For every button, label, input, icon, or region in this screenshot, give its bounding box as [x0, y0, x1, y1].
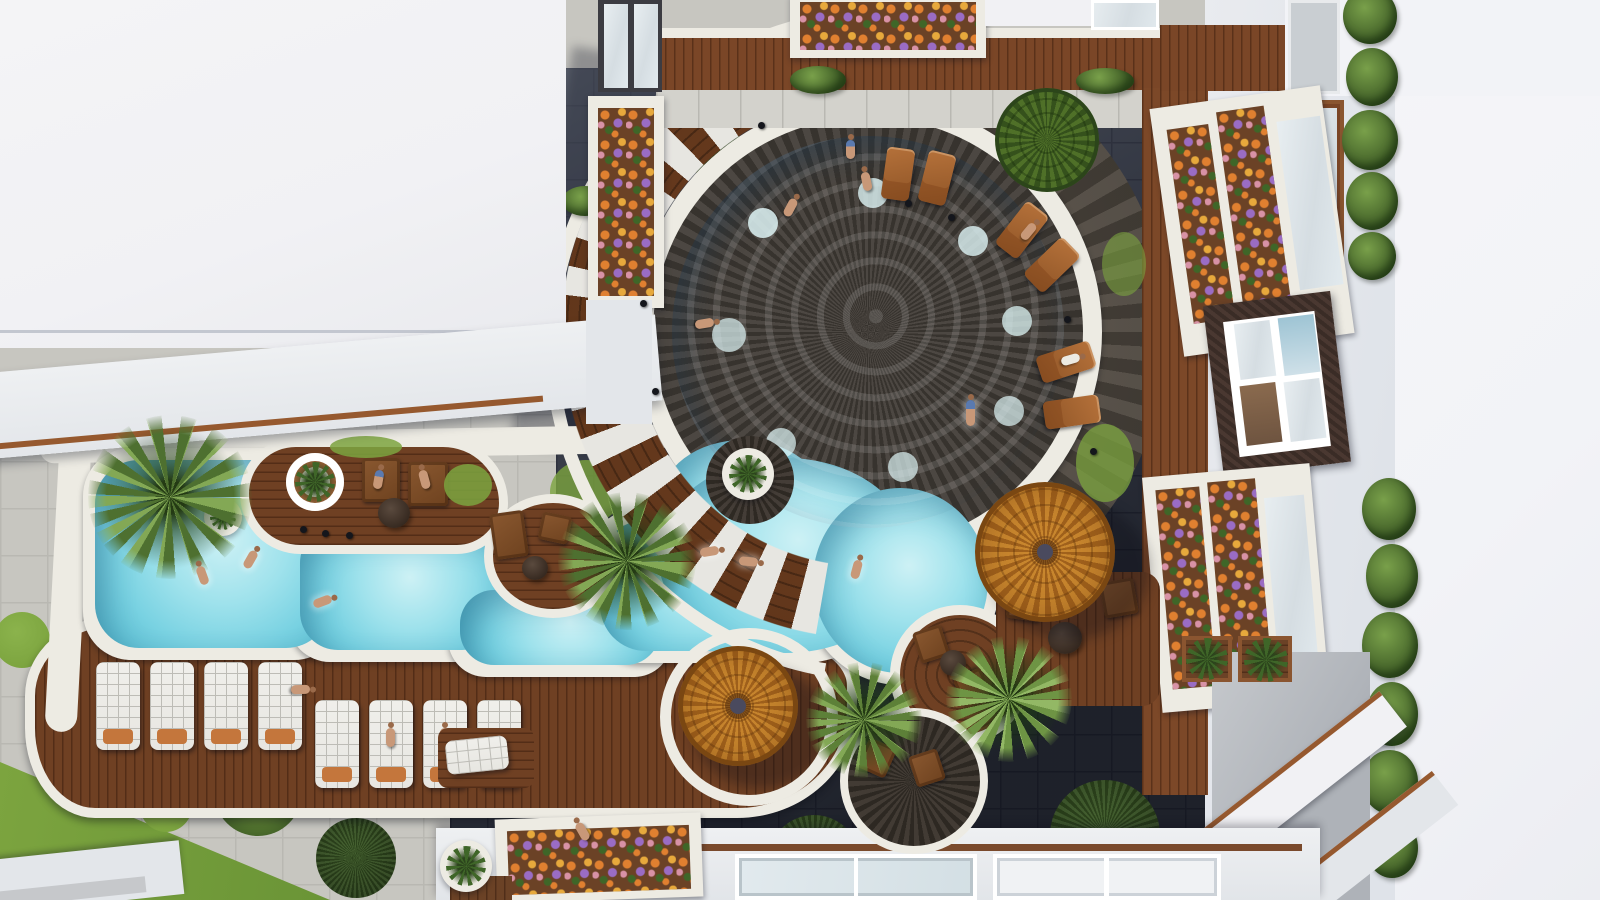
lounger-cushion: [103, 729, 134, 744]
lawn-crescent: [330, 436, 402, 458]
hedge: [1346, 172, 1398, 230]
deck-light: [1064, 316, 1071, 323]
gray-panels: [1288, 0, 1340, 94]
white-lounger: [96, 662, 140, 750]
light-path: [656, 90, 1208, 128]
palm-tree: [558, 492, 696, 630]
deck-light: [948, 214, 955, 221]
palm-tree: [806, 662, 922, 778]
white-lounger: [204, 662, 248, 750]
lounger-cushion: [157, 729, 188, 744]
side-table: [378, 498, 410, 528]
deck-light: [300, 526, 307, 533]
timber-parasol: [975, 482, 1115, 622]
white-bench: [444, 735, 509, 775]
palm-tree: [88, 415, 252, 579]
hedge: [1362, 612, 1418, 678]
skylight-divider: [854, 856, 858, 900]
window-pane: [1239, 382, 1282, 446]
roof-top-left: [0, 0, 566, 348]
lounger-cushion: [376, 767, 407, 782]
deck-light: [346, 532, 353, 539]
white-lounger: [315, 700, 359, 788]
lawn-crescent: [1076, 424, 1134, 502]
timber-corner: [1160, 25, 1292, 91]
lawn-crescent: [444, 464, 492, 506]
wall-panel: [586, 300, 652, 424]
balcony-planter: [800, 2, 976, 50]
underwater-seat: [958, 226, 988, 256]
swimmer: [966, 400, 975, 426]
underwater-seat: [1002, 306, 1032, 336]
hedge-blob: [790, 66, 846, 94]
planter-greens: [295, 462, 335, 502]
swimmer: [739, 556, 759, 567]
hedge-blob: [1076, 68, 1134, 94]
sunbather: [291, 685, 310, 695]
lawn-crescent: [1102, 232, 1146, 296]
deck-light: [905, 200, 912, 207]
balcony-planter: [598, 108, 654, 296]
roof-planter-flowers: [507, 825, 691, 895]
fern: [1186, 638, 1228, 680]
wall-piece: [985, 0, 1091, 26]
green-parasol: [995, 88, 1099, 192]
roof-window-glass: [634, 4, 658, 88]
lounger-cushion: [322, 767, 353, 782]
window-pane: [1283, 378, 1326, 442]
deck-light: [1090, 448, 1097, 455]
resort-courtyard-scene: [0, 0, 1600, 900]
roof-window-glass: [604, 4, 628, 88]
hedge: [1348, 232, 1396, 280]
deck-light: [652, 388, 659, 395]
side-table: [522, 556, 548, 580]
person-standing: [846, 140, 855, 159]
island-lounger: [489, 510, 529, 560]
far-right-roof: [1395, 0, 1600, 900]
white-lounger: [258, 662, 302, 750]
hedge: [1362, 478, 1416, 540]
timber-parasol: [678, 646, 798, 766]
underwater-seat: [994, 396, 1024, 426]
lounger-cushion: [211, 729, 242, 744]
lounger-cushion: [265, 729, 296, 744]
sunbather: [386, 728, 395, 747]
white-lounger: [150, 662, 194, 750]
fern: [1244, 638, 1288, 682]
hedge: [1346, 48, 1398, 106]
skylight-glass: [1091, 0, 1159, 30]
palm-tree: [946, 636, 1072, 762]
deck-light: [758, 122, 765, 129]
deck-light: [640, 300, 647, 307]
dark-lawn-disc: [316, 818, 396, 898]
window-pane: [1234, 320, 1277, 380]
skylight-divider: [1104, 856, 1109, 900]
underwater-seat: [888, 452, 918, 482]
roof-trim: [698, 844, 1302, 851]
hedge: [1366, 544, 1418, 608]
window-pane: [1278, 314, 1321, 376]
hedge: [1342, 110, 1398, 170]
deck-light: [322, 530, 329, 537]
planter-palm: [446, 846, 486, 886]
